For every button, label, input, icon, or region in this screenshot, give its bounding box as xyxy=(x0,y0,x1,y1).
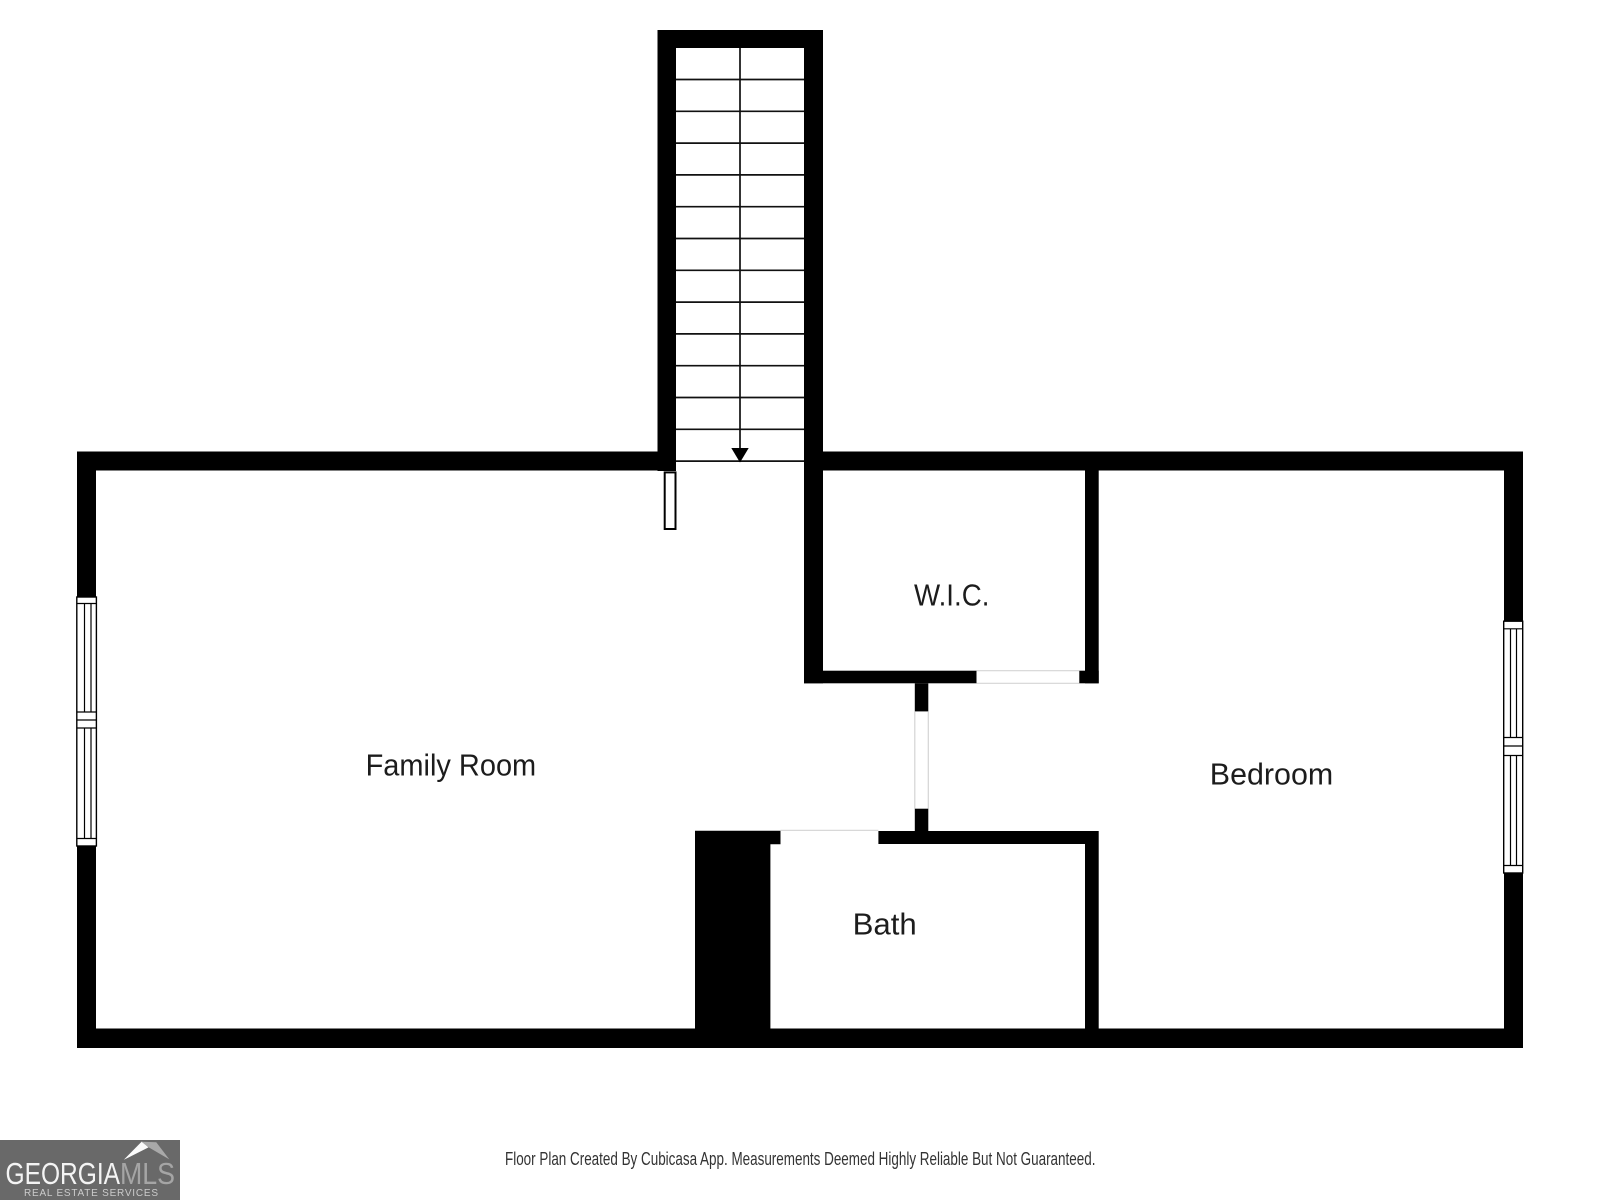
svg-text:GEORGIA: GEORGIA xyxy=(6,1157,121,1191)
svg-text:W.I.C.: W.I.C. xyxy=(914,578,989,613)
svg-text:MLS: MLS xyxy=(120,1157,175,1191)
svg-text:REAL ESTATE SERVICES: REAL ESTATE SERVICES xyxy=(24,1188,158,1199)
svg-text:Bedroom: Bedroom xyxy=(1210,757,1333,792)
svg-text:Bath: Bath xyxy=(853,906,917,941)
svg-text:Family Room: Family Room xyxy=(366,747,537,782)
